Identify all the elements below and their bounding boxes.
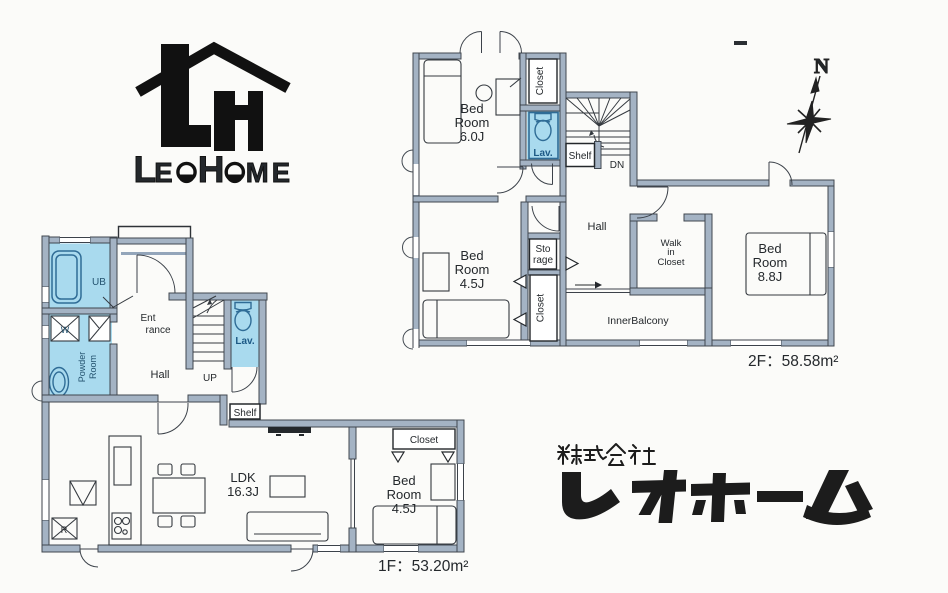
svg-text:1F：53.20m²: 1F：53.20m² (378, 558, 468, 575)
svg-text:6.0J: 6.0J (460, 129, 485, 144)
svg-text:E: E (154, 157, 172, 188)
svg-text:2F：58.58m²: 2F：58.58m² (748, 353, 838, 370)
svg-text:N: N (814, 54, 829, 78)
svg-text:Closet: Closet (658, 257, 685, 268)
svg-text:Room: Room (455, 115, 490, 130)
svg-text:Bed: Bed (758, 241, 781, 256)
svg-text:16.3J: 16.3J (227, 484, 259, 499)
svg-text:Lav.: Lav. (235, 336, 254, 347)
svg-text:E: E (272, 157, 290, 188)
svg-text:4.5J: 4.5J (392, 501, 417, 516)
svg-text:H: H (198, 149, 225, 190)
svg-text:W: W (61, 325, 70, 335)
svg-text:L: L (134, 149, 157, 190)
svg-text:Room: Room (88, 355, 98, 379)
svg-text:rance: rance (145, 325, 170, 336)
svg-text:Powder: Powder (77, 352, 87, 383)
svg-text:Sto: Sto (535, 244, 550, 255)
svg-text:Room: Room (455, 262, 490, 277)
svg-text:4.5J: 4.5J (460, 276, 485, 291)
svg-text:Ent: Ent (140, 313, 155, 324)
svg-text:M: M (246, 157, 269, 188)
svg-text:R: R (61, 525, 68, 535)
svg-text:Hall: Hall (588, 221, 607, 233)
svg-text:Hall: Hall (151, 369, 170, 381)
svg-text:Lav.: Lav. (533, 148, 552, 159)
svg-text:Closet: Closet (536, 294, 547, 323)
svg-text:Room: Room (387, 487, 422, 502)
svg-text:rage: rage (533, 255, 553, 266)
svg-text:Bed: Bed (460, 248, 483, 263)
svg-text:Shelf: Shelf (234, 408, 257, 419)
svg-text:Closet: Closet (535, 67, 546, 96)
svg-text:DN: DN (610, 160, 624, 171)
svg-text:Bed: Bed (392, 473, 415, 488)
svg-text:InnerBalcony: InnerBalcony (607, 315, 669, 327)
svg-text:Room: Room (753, 255, 788, 270)
svg-text:LDK: LDK (230, 470, 256, 485)
svg-text:Shelf: Shelf (569, 151, 592, 162)
svg-text:Closet: Closet (410, 435, 439, 446)
svg-text:UP: UP (203, 373, 217, 384)
svg-text:UB: UB (92, 277, 106, 288)
svg-text:Bed: Bed (460, 101, 483, 116)
svg-text:8.8J: 8.8J (758, 269, 783, 284)
